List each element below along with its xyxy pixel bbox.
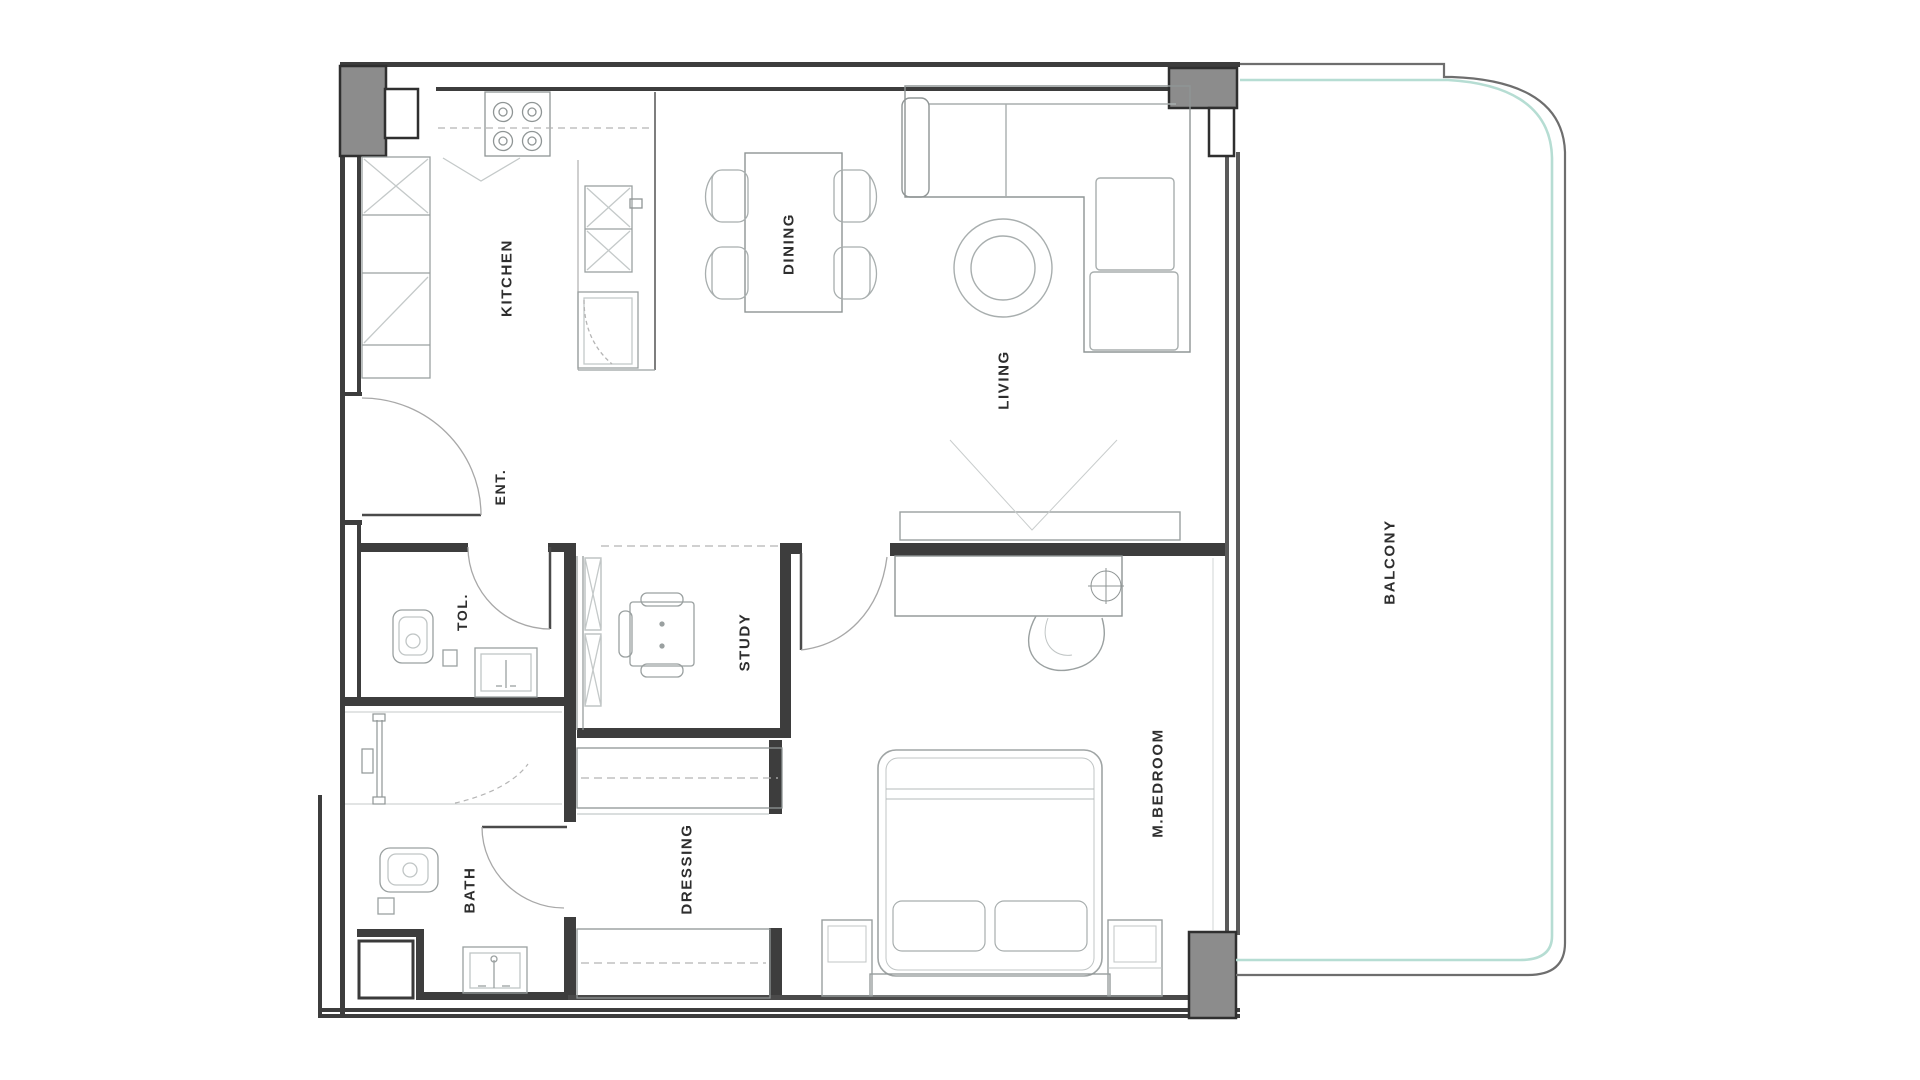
washbasin-icon [475, 648, 537, 697]
desk-chair-icon [619, 593, 694, 677]
toilet-icon [393, 610, 433, 663]
coffee-table-icon [954, 219, 1052, 317]
vanity-chair-icon [1029, 616, 1105, 670]
pillow-icon [893, 901, 985, 951]
tv-console-icon [900, 440, 1180, 540]
balcony-rail-icon [1236, 64, 1565, 975]
wardrobe-icon [585, 558, 601, 706]
dishwasher-icon [578, 292, 638, 368]
room-label-dining: DINING [781, 213, 798, 275]
sofa-icon [902, 86, 1190, 352]
floor-plan-drawing [0, 0, 1920, 1080]
sprayer-icon [443, 650, 457, 666]
pillow-icon [995, 901, 1087, 951]
column-icon [340, 66, 386, 156]
shower-screen-icon [362, 714, 385, 804]
stove-icon [485, 92, 550, 156]
shower-door-dashed-swing-icon [455, 764, 528, 803]
bath-door-swing-icon [482, 827, 567, 908]
refrigerator-icon [362, 157, 430, 378]
counter-corner-lines [443, 158, 520, 181]
kitchen-sink-icon [585, 186, 642, 272]
vanity-mirror-icon [1088, 568, 1124, 604]
room-label-living: LIVING [996, 350, 1013, 410]
dressing-cabinet-icon [577, 929, 770, 998]
room-label-dressing: DRESSING [679, 823, 696, 914]
room-label-mbedroom: M.BEDROOM [1150, 728, 1167, 837]
bedroom-door-swing-icon [801, 553, 887, 650]
room-label-balcony: BALCONY [1382, 519, 1399, 604]
room-label-kitchen: KITCHEN [499, 239, 516, 317]
nightstand-icon [1108, 920, 1162, 996]
bath-room [345, 712, 562, 998]
entrance-door-swing-icon [362, 398, 481, 515]
dressing-cabinet-icon [577, 748, 782, 814]
floor-plan-canvas: KITCHEN DINING LIVING ENT. TOL. STUDY BA… [0, 0, 1920, 1080]
doors [362, 398, 887, 908]
room-label-tol: TOL. [454, 593, 470, 631]
room-label-study: STUDY [737, 613, 754, 672]
column-icon [1169, 68, 1237, 108]
headboard [870, 974, 1110, 996]
vanity-desk-icon [895, 556, 1124, 616]
nightstand-icon [822, 920, 872, 996]
washbasin-icon [463, 947, 527, 993]
tol-door-swing-icon [468, 547, 550, 629]
room-label-bath: BATH [462, 867, 479, 914]
bed-icon [870, 750, 1110, 996]
room-label-ent: ENT. [492, 469, 508, 506]
sprayer-icon [378, 898, 394, 914]
column-icon [1189, 932, 1236, 1018]
master-bedroom [822, 556, 1162, 996]
bookshelf-icon [577, 556, 583, 730]
toilet-icon [380, 848, 438, 892]
shaft-icon [359, 941, 413, 998]
wall-box [1209, 108, 1234, 156]
wall-box [385, 89, 418, 138]
